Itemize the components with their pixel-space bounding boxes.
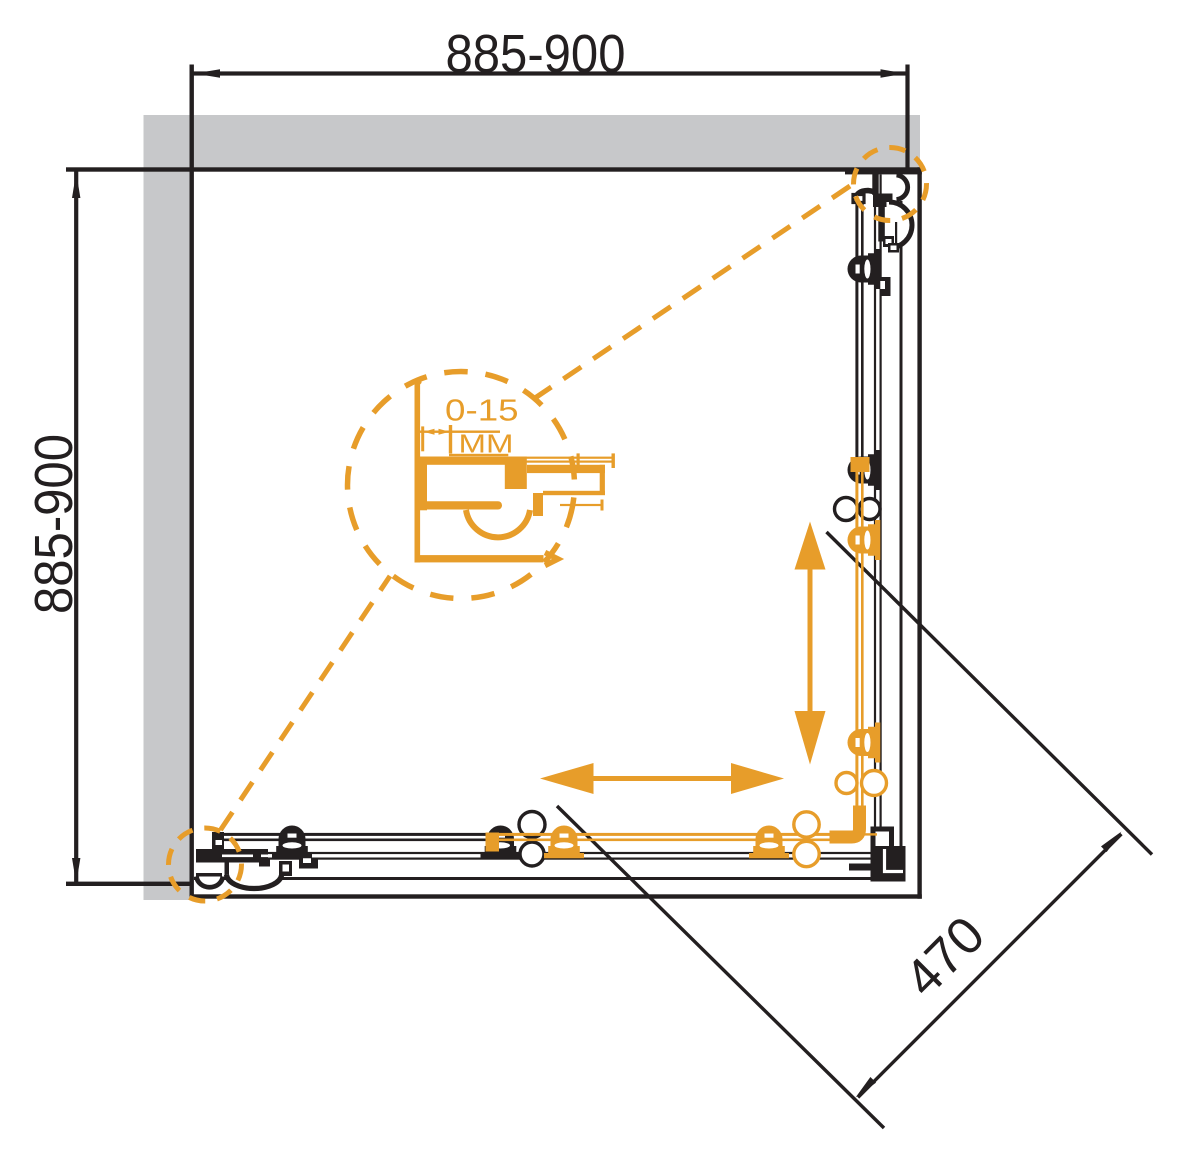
svg-text:885-900: 885-900 bbox=[446, 24, 626, 84]
svg-text:MM: MM bbox=[459, 429, 514, 459]
svg-text:0-15: 0-15 bbox=[445, 394, 519, 428]
svg-text:885-900: 885-900 bbox=[24, 434, 84, 614]
